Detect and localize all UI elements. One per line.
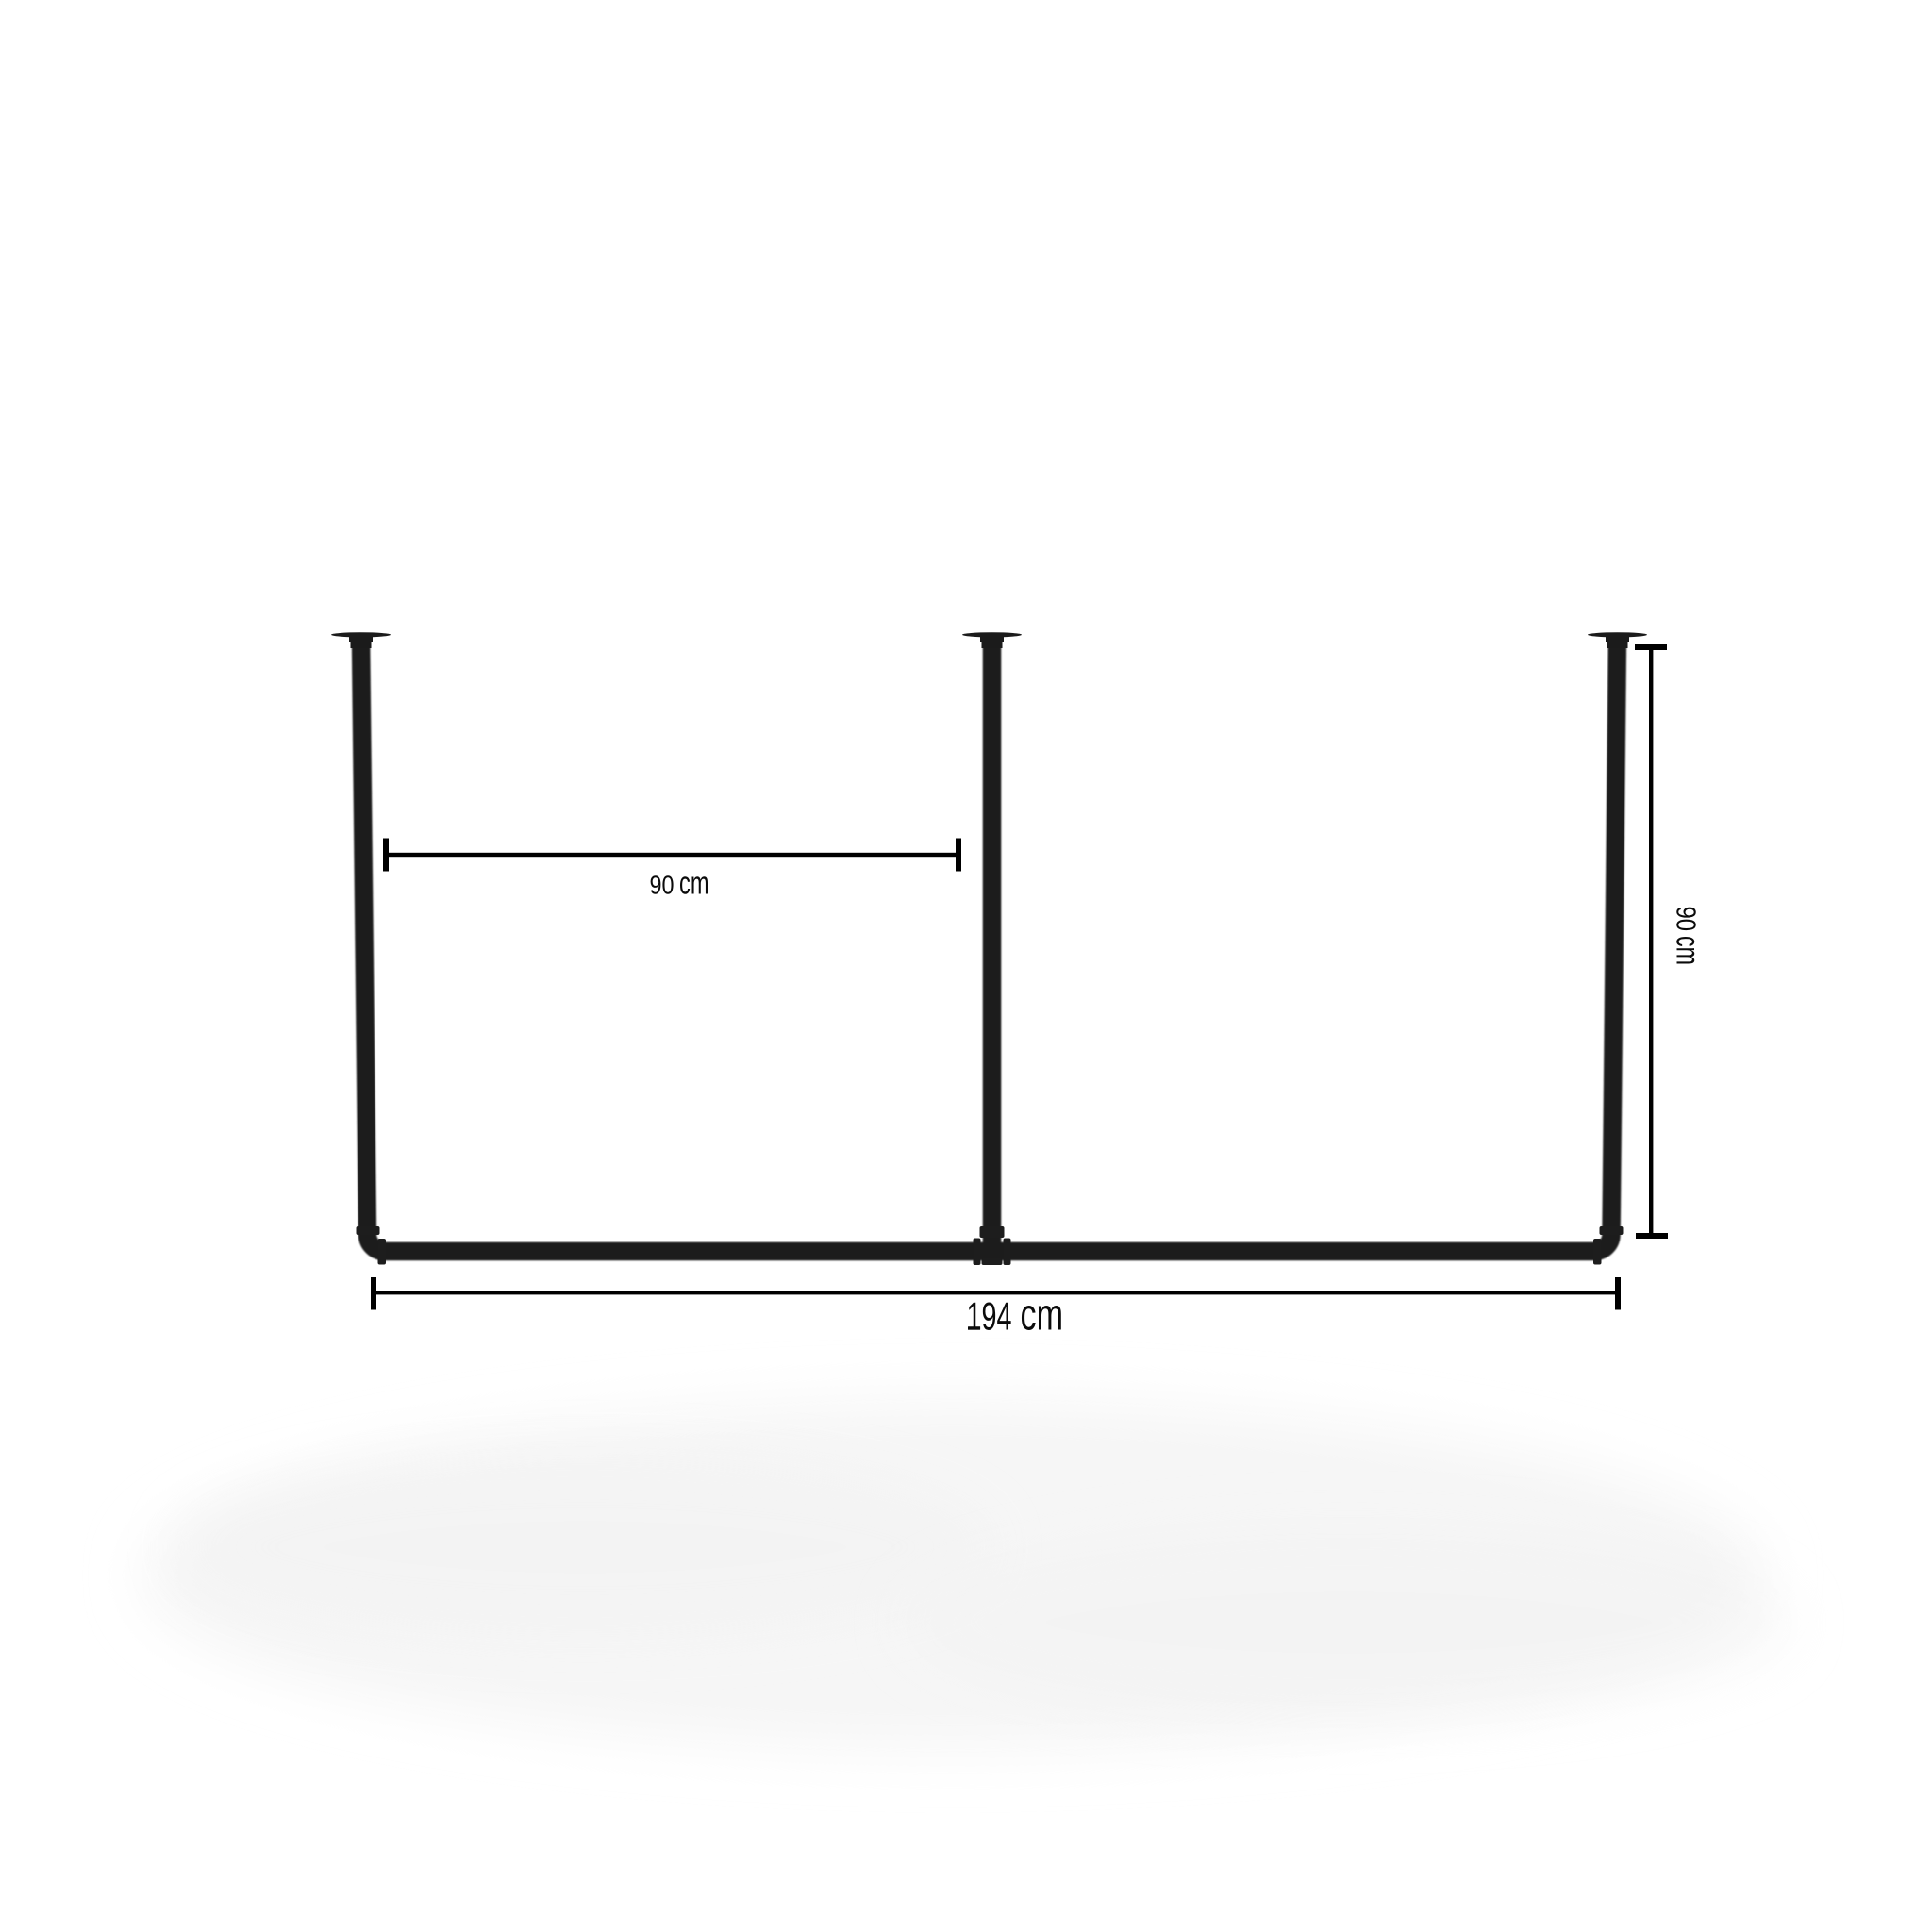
svg-text:194: 194 [967,1294,1012,1339]
svg-text:cm: cm [1670,936,1707,965]
svg-text:90: 90 [650,871,675,900]
svg-text:cm: cm [1021,1290,1064,1340]
svg-text:cm: cm [679,866,709,902]
svg-text:90: 90 [1671,907,1701,932]
